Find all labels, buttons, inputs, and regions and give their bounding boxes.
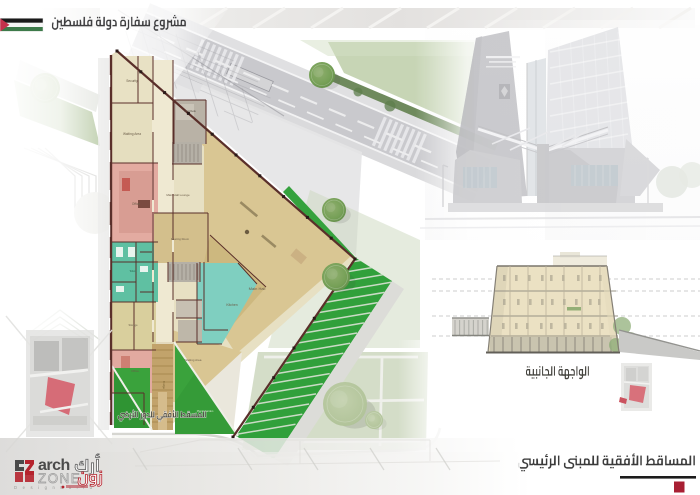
svg-text:Main Hall Lounge: Main Hall Lounge [166, 193, 190, 197]
svg-text:Security: Security [126, 79, 138, 83]
svg-text:Office: Office [132, 202, 140, 206]
svg-text:Bridge: Bridge [162, 381, 166, 390]
svg-text:Toilets: Toilets [129, 269, 137, 273]
svg-text:Waiting Area: Waiting Area [185, 358, 202, 362]
svg-text:Kitchen: Kitchen [226, 303, 237, 307]
svg-text:Office: Office [131, 369, 139, 373]
svg-text:Meeting Room: Meeting Room [171, 237, 190, 241]
svg-text:Storage: Storage [128, 323, 138, 327]
svg-text:Waiting Area: Waiting Area [123, 132, 141, 136]
svg-text:Main Hall: Main Hall [249, 286, 266, 291]
svg-text:Front Desk: Front Desk [184, 110, 196, 113]
svg-text:ZONE: ZONE [38, 471, 81, 486]
